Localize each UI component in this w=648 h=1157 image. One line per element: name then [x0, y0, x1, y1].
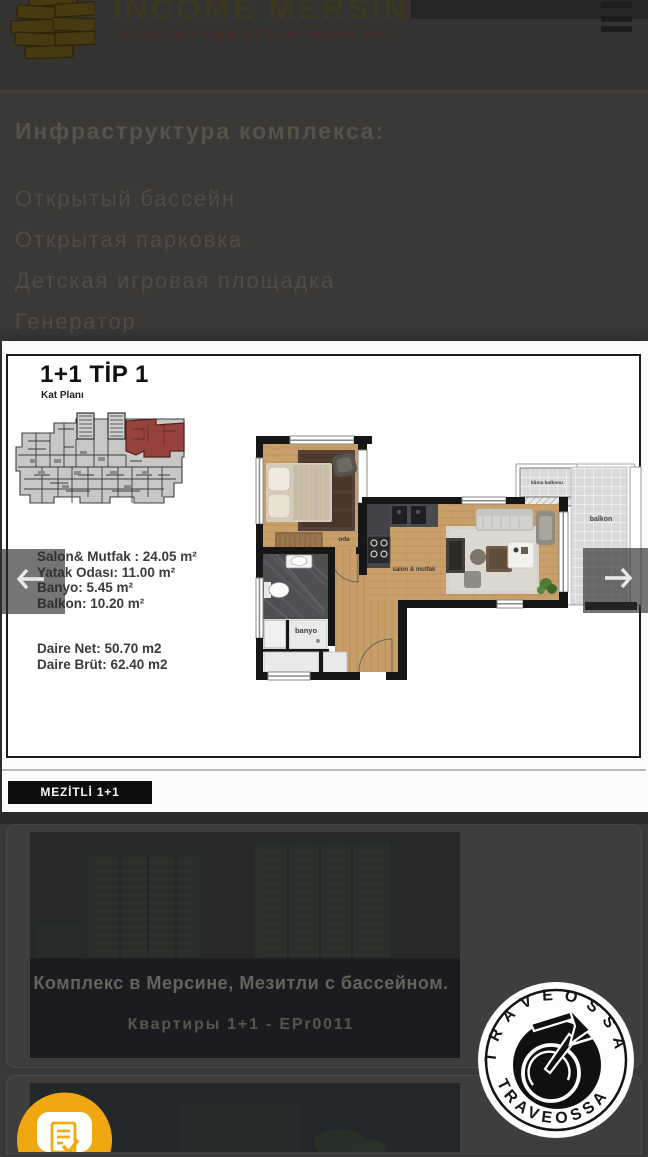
- svg-text:banyo: banyo: [295, 626, 318, 635]
- svg-text:klima balkonu: klima balkonu: [531, 480, 563, 486]
- svg-text:salon & mutfak: salon & mutfak: [392, 567, 436, 573]
- svg-text:oda: oda: [338, 536, 350, 543]
- svg-text:balkon: balkon: [590, 516, 613, 523]
